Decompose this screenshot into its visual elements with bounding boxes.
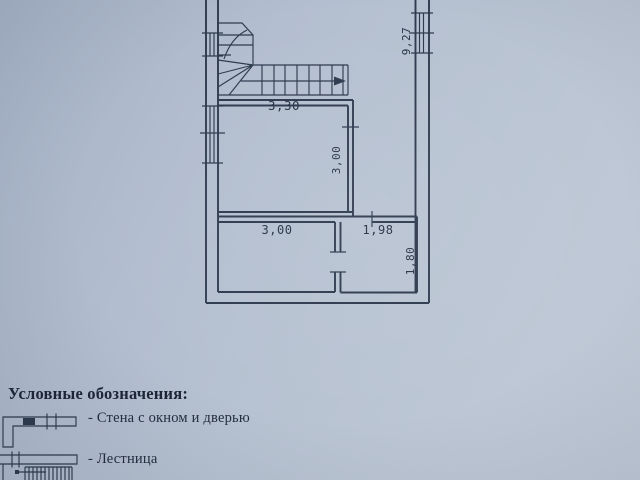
- dimension-label-bottom-left-room-width: 3,00: [247, 223, 307, 237]
- door-jamb-ticks: [47, 414, 56, 430]
- dimension-label-stair-flight-width: 3,30: [254, 99, 314, 113]
- stairs-hatch: [25, 467, 72, 480]
- stair-treads: [262, 65, 343, 95]
- legend-title: Условные обозначения:: [8, 384, 188, 404]
- dimension-label-bottom-right-room-height: 1,80: [404, 231, 418, 291]
- window-symbol-left-wall-lower: [200, 106, 225, 163]
- legend-label-wall-window-door: - Стена с окном и дверью: [88, 410, 250, 427]
- window-fill: [23, 418, 35, 425]
- bottom-rooms-door-opening: [330, 222, 346, 293]
- floor-plan-photo: 3,30 3,00 3,00 1,98 1,80 9,27 Условные о…: [0, 0, 640, 480]
- wall-window-door-icon: [0, 408, 84, 448]
- winder-treads: [218, 60, 253, 95]
- stair-direction-arrow: [241, 77, 346, 86]
- stairs-icon: [0, 448, 84, 480]
- dimension-label-hall-room-height: 3,00: [330, 130, 344, 190]
- floor-plan-drawing: [0, 0, 640, 480]
- staircase: [218, 23, 348, 95]
- legend-label-stairs: - Лестница: [88, 451, 157, 468]
- dimension-label-building-side-length: 9,27: [400, 11, 414, 71]
- dimension-label-bottom-right-room-width: 1,98: [348, 223, 408, 237]
